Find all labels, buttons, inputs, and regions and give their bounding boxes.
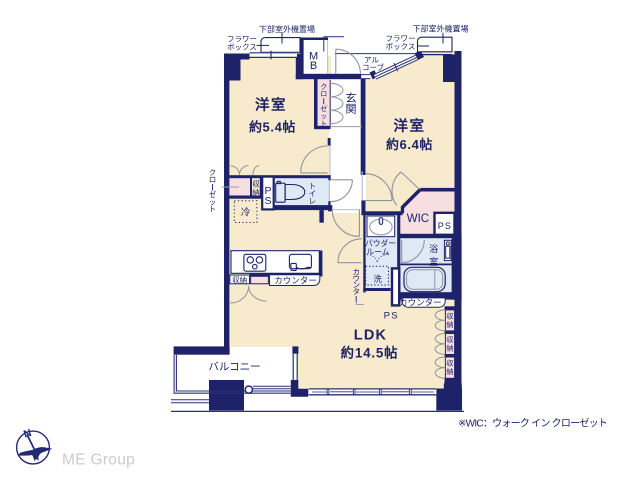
svg-text:PS: PS: [438, 221, 452, 231]
svg-text:洋室: 洋室: [255, 96, 287, 114]
svg-text:約14.5帖: 約14.5帖: [341, 345, 399, 361]
svg-text:約6.4帖: 約6.4帖: [386, 137, 433, 152]
svg-text:収: 収: [447, 336, 454, 344]
svg-text:納: 納: [447, 367, 454, 376]
svg-text:PS: PS: [384, 310, 399, 321]
svg-text:パウダー: パウダー: [365, 238, 396, 248]
svg-text:※WIC：ウォーク イン クローゼット: ※WIC：ウォーク イン クローゼット: [458, 418, 607, 430]
svg-text:洋室: 洋室: [394, 117, 426, 135]
svg-text:ゼ: ゼ: [320, 104, 327, 113]
svg-text:レ: レ: [309, 197, 317, 206]
svg-text:ボックス: ボックス: [386, 42, 416, 51]
svg-text:ロ: ロ: [320, 91, 327, 98]
svg-text:S: S: [264, 195, 271, 207]
svg-text:ボックス: ボックス: [227, 43, 257, 52]
svg-text:下部室外機置場: 下部室外機置場: [413, 24, 469, 34]
svg-text:ロ: ロ: [209, 175, 217, 184]
svg-text:ッ: ッ: [320, 113, 327, 120]
svg-text:納: 納: [447, 320, 454, 329]
svg-text:ME Group: ME Group: [62, 452, 135, 469]
svg-text:ルーム: ルーム: [366, 248, 389, 257]
svg-text:納: 納: [252, 187, 260, 197]
svg-text:ト: ト: [320, 121, 327, 128]
svg-text:コーブ: コーブ: [362, 62, 385, 72]
svg-text:約5.4帖: 約5.4帖: [249, 120, 296, 135]
svg-text:ト: ト: [209, 205, 217, 214]
svg-text:関: 関: [346, 103, 357, 116]
svg-text:LDK: LDK: [354, 328, 387, 344]
svg-text:洗: 洗: [374, 274, 383, 284]
svg-text:カウンター: カウンター: [274, 276, 317, 286]
svg-text:B: B: [310, 60, 317, 72]
svg-text:収: 収: [447, 312, 454, 320]
svg-text:冷: 冷: [241, 207, 251, 219]
svg-text:玄: 玄: [346, 91, 357, 105]
svg-text:バルコニー: バルコニー: [208, 361, 260, 373]
svg-text:収: 収: [447, 359, 454, 367]
svg-text:室: 室: [429, 256, 438, 267]
svg-text:WIC: WIC: [407, 213, 429, 225]
svg-text:タ: タ: [352, 287, 360, 296]
svg-text:カウンター: カウンター: [399, 298, 442, 308]
svg-text:浴: 浴: [429, 244, 438, 254]
svg-text:ク: ク: [320, 83, 327, 91]
svg-text:下部室外機置場: 下部室外機置場: [259, 24, 315, 34]
svg-text:収納: 収納: [232, 275, 247, 285]
svg-text:納: 納: [447, 344, 454, 353]
